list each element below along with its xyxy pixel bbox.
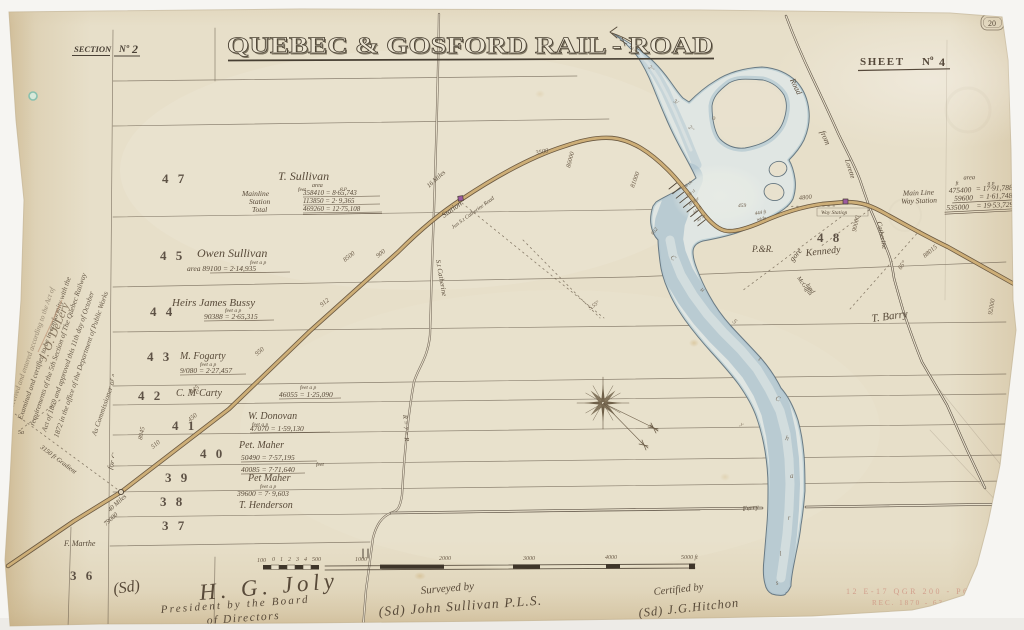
- svg-text:N: N: [922, 56, 930, 68]
- svg-text:F. Marthe: F. Marthe: [63, 539, 96, 548]
- svg-text:3 8: 3 8: [160, 494, 185, 509]
- svg-text:0: 0: [272, 557, 275, 563]
- svg-text:47070 = 1·59,130: 47070 = 1·59,130: [250, 424, 304, 433]
- svg-text:2000: 2000: [439, 556, 451, 562]
- svg-text:Heirs James Bussy: Heirs James Bussy: [171, 297, 255, 309]
- svg-text:o: o: [930, 54, 934, 62]
- svg-text:4: 4: [304, 556, 307, 563]
- svg-text:59600: 59600: [954, 193, 973, 203]
- svg-text:469260 = 12·75,108: 469260 = 12·75,108: [303, 205, 361, 213]
- svg-text:P.&R.: P.&R.: [751, 244, 773, 254]
- svg-text:area: area: [963, 174, 975, 181]
- svg-text:M. Fogarty: M. Fogarty: [179, 351, 226, 362]
- svg-text:SECTION: SECTION: [74, 44, 112, 54]
- svg-text:46055 = 1·25,090: 46055 = 1·25,090: [279, 390, 333, 399]
- svg-text:4 7: 4 7: [162, 171, 187, 186]
- svg-text:1000: 1000: [355, 557, 367, 563]
- svg-text:4 8: 4 8: [817, 230, 842, 245]
- svg-text:QUEBEC & GOSFORD RAIL - ROAD: QUEBEC & GOSFORD RAIL - ROAD: [227, 33, 713, 59]
- svg-text:459: 459: [738, 202, 747, 209]
- svg-text:Way Station: Way Station: [901, 195, 937, 205]
- svg-text:a: a: [790, 472, 794, 480]
- svg-text:4000: 4000: [605, 554, 617, 561]
- svg-text:3000: 3000: [522, 556, 535, 562]
- svg-text:5a: 5a: [18, 430, 24, 436]
- svg-text:100: 100: [257, 558, 266, 564]
- svg-text:50490 = 7·57,195: 50490 = 7·57,195: [241, 453, 295, 462]
- svg-text:Total: Total: [252, 205, 267, 214]
- svg-text:Pet. Maher: Pet. Maher: [238, 440, 284, 451]
- svg-text:4 2: 4 2: [138, 388, 163, 403]
- svg-text:4 5: 4 5: [160, 248, 185, 263]
- svg-text:535000: 535000: [946, 202, 969, 212]
- svg-text:SHEET: SHEET: [860, 56, 905, 68]
- svg-text:3 6: 3 6: [70, 568, 95, 583]
- svg-text:4: 4: [939, 55, 945, 69]
- svg-text:358410 = 8·65,743: 358410 = 8·65,743: [302, 189, 357, 197]
- svg-text:20: 20: [988, 19, 996, 28]
- svg-text:Owen Sullivan: Owen Sullivan: [197, 246, 267, 260]
- svg-text:4800: 4800: [798, 194, 812, 202]
- svg-text:area 89100 = 2·14,935: area 89100 = 2·14,935: [187, 264, 256, 273]
- svg-text:4 0: 4 0: [200, 446, 225, 461]
- svg-text:T. Sullivan: T. Sullivan: [278, 169, 329, 183]
- svg-text:39600 = 7· 9,603: 39600 = 7· 9,603: [236, 489, 289, 498]
- svg-text:2: 2: [131, 42, 138, 56]
- svg-text:T. Henderson: T. Henderson: [239, 500, 293, 511]
- svg-text:5000 ft: 5000 ft: [681, 554, 698, 561]
- svg-text:Pet Maher: Pet Maher: [247, 473, 291, 484]
- svg-text:feet: feet: [316, 461, 324, 468]
- svg-text:2: 2: [288, 557, 291, 563]
- svg-text:90388 = 2·65,315: 90388 = 2·65,315: [204, 312, 258, 321]
- svg-text:o: o: [712, 114, 716, 122]
- svg-text:9/080 = 2·27,457: 9/080 = 2·27,457: [180, 366, 232, 375]
- svg-text:500: 500: [312, 557, 321, 563]
- svg-text:W. Donovan: W. Donovan: [248, 411, 297, 422]
- svg-text:1: 1: [280, 557, 283, 563]
- svg-text:3 7: 3 7: [162, 518, 187, 533]
- svg-text:Way Station: Way Station: [821, 210, 847, 216]
- svg-text:3: 3: [295, 557, 299, 563]
- svg-text:4 3: 4 3: [147, 349, 172, 364]
- svg-text:113850 = 2· 9,365: 113850 = 2· 9,365: [303, 197, 355, 205]
- svg-text:3 9: 3 9: [165, 470, 190, 485]
- svg-text:o: o: [127, 44, 130, 50]
- svg-text:12 E-17 QGR 200 - P63: 12 E-17 QGR 200 - P63: [846, 587, 976, 596]
